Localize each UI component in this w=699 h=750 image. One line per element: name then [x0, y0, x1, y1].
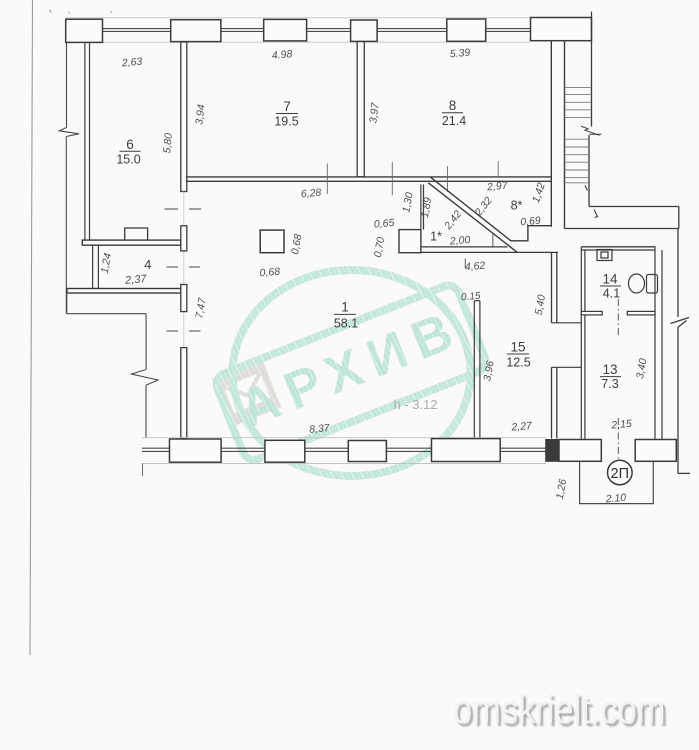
- svg-text:5,80: 5,80: [161, 132, 175, 154]
- svg-text:13: 13: [602, 362, 617, 377]
- svg-text:6: 6: [126, 137, 134, 152]
- svg-text:2,37: 2,37: [124, 273, 148, 287]
- svg-text:4.98: 4.98: [271, 48, 293, 62]
- svg-text:2,97: 2,97: [486, 180, 510, 194]
- svg-text:2,00: 2,00: [448, 234, 471, 248]
- svg-text:4: 4: [144, 257, 151, 272]
- svg-text:7,47: 7,47: [193, 296, 209, 319]
- svg-text:5,40: 5,40: [533, 294, 548, 316]
- svg-text:14: 14: [602, 272, 618, 287]
- svg-text:3,40: 3,40: [634, 357, 649, 379]
- svg-text:4,62: 4,62: [464, 260, 486, 274]
- svg-text:1,42: 1,42: [530, 181, 548, 204]
- svg-text:7: 7: [283, 99, 291, 114]
- svg-text:7.3: 7.3: [601, 377, 618, 391]
- svg-text:0,65: 0,65: [373, 217, 395, 231]
- svg-text:0,68: 0,68: [289, 233, 304, 255]
- svg-text:1: 1: [341, 300, 349, 315]
- svg-text:0,68: 0,68: [259, 266, 281, 280]
- svg-text:15.0: 15.0: [116, 153, 140, 167]
- svg-text:21.4: 21.4: [442, 114, 466, 128]
- svg-text:0,69: 0,69: [520, 215, 542, 229]
- svg-text:h - 3.12: h - 3.12: [393, 397, 437, 412]
- svg-text:2П: 2П: [611, 466, 630, 482]
- svg-text:0.15: 0.15: [461, 291, 482, 304]
- svg-text:1,24: 1,24: [99, 252, 114, 274]
- svg-text:1,30: 1,30: [400, 191, 415, 213]
- svg-text:8: 8: [449, 98, 457, 113]
- svg-text:3,97: 3,97: [367, 101, 382, 124]
- svg-text:4.1: 4.1: [603, 287, 620, 301]
- svg-text:2,42: 2,42: [442, 208, 465, 232]
- svg-text:1*: 1*: [430, 230, 442, 244]
- svg-text:58.1: 58.1: [334, 317, 358, 331]
- svg-text:2.10: 2.10: [604, 492, 627, 506]
- svg-text:8*: 8*: [511, 199, 523, 213]
- svg-text:2,15: 2,15: [610, 418, 633, 432]
- svg-text:5.39: 5.39: [449, 47, 471, 61]
- svg-text:15: 15: [510, 340, 525, 355]
- svg-text:3,94: 3,94: [193, 104, 207, 126]
- svg-text:2,32: 2,32: [472, 195, 495, 219]
- svg-text:6,28: 6,28: [300, 187, 322, 201]
- svg-text:1,89: 1,89: [419, 196, 434, 218]
- svg-text:2,63: 2,63: [120, 56, 143, 70]
- svg-text:8,37: 8,37: [309, 422, 332, 436]
- svg-text:12.5: 12.5: [506, 356, 530, 370]
- svg-text:1,26: 1,26: [554, 478, 569, 500]
- svg-text:2,27: 2,27: [510, 420, 534, 434]
- svg-text:19.5: 19.5: [274, 115, 298, 129]
